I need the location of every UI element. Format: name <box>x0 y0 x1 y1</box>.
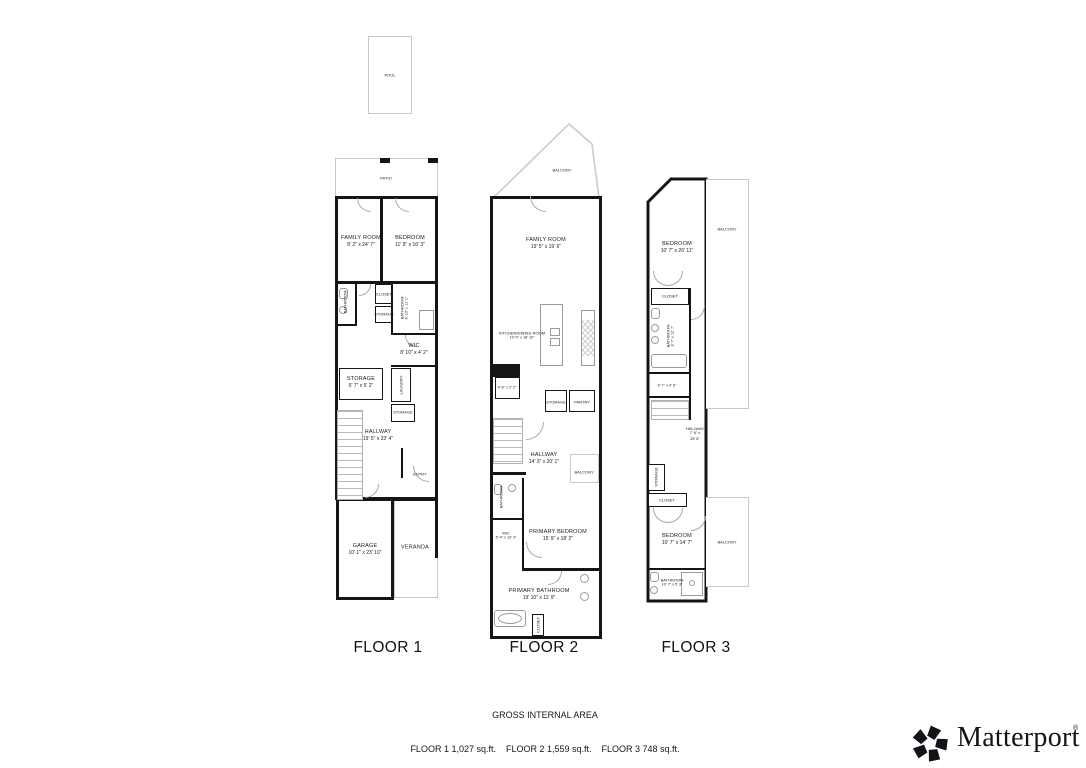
wic-label: WIC5' 4" x 13' 3" <box>496 531 517 542</box>
balcony-top-outline <box>706 179 749 409</box>
balcony-outline <box>490 122 602 200</box>
room-dims: 8' 2" x 24' 7" <box>341 242 381 249</box>
wall <box>401 448 403 478</box>
laundry-label: LAUNDRY <box>398 375 403 394</box>
patio-label-text: PATIO <box>380 175 391 180</box>
bathroom-bottom-label: BATHROOM10' 7" x 5' 3" <box>661 578 684 589</box>
matterport-logo: Matterport ® <box>910 719 1086 767</box>
nook-label: 6' 7" x 4' 6" <box>658 383 677 388</box>
stove-fixture <box>550 338 560 346</box>
balcony-label: BALCONY <box>552 167 571 172</box>
wall <box>648 396 690 398</box>
room-name: WIC <box>400 343 427 350</box>
wall <box>648 372 690 374</box>
hallway-label: HALLWAY7' 8" x28' 6" <box>686 426 704 442</box>
room-name: CLOSET <box>659 497 675 502</box>
floor2-plan: BALCONY FAMILY ROOM19' 5" x 19' 6" KITCH… <box>490 122 602 640</box>
shower-drain <box>689 580 695 586</box>
storage-small-label: STORAGE <box>393 409 413 414</box>
wall <box>391 281 393 335</box>
stairs <box>493 418 523 464</box>
room-name: GARAGE <box>349 543 382 550</box>
room-name: FAMILY ROOM <box>526 237 566 244</box>
room-name: BEDROOM <box>395 235 425 242</box>
balcony-top-label: BALCONY <box>717 226 736 231</box>
hallway-label: HALLWAY19' 5" x 33' 4" <box>363 429 393 443</box>
closet-bottom-label: CLOSET <box>659 497 675 502</box>
room-name: STORAGE <box>374 311 394 316</box>
wall <box>490 472 526 475</box>
wall <box>493 364 520 377</box>
primary-bathroom-label: PRIMARY BATHROOM19' 10" x 11' 9" <box>509 588 570 602</box>
room-dims: 19' 10" x 11' 9" <box>509 595 570 602</box>
room-dims: 8' 10" x 4' 2" <box>400 350 427 357</box>
registered-mark: ® <box>1073 725 1078 732</box>
toilet-fixture <box>651 308 660 319</box>
room-name: BALCONY <box>552 167 571 172</box>
room-dims: 14' 3" x 20' 1" <box>529 459 559 466</box>
wic-label: WIC8' 10" x 4' 2" <box>400 343 427 357</box>
floor1-caption: FLOOR 1 <box>353 639 422 657</box>
bathroom-label: BATHROOM8' 10" x 11' 1" <box>400 297 411 320</box>
room-dims: 15' 9" x 18' 2" <box>529 536 587 543</box>
wall <box>394 498 438 501</box>
primary-bedroom-label: PRIMARY BEDROOM15' 9" x 18' 2" <box>529 529 587 543</box>
room-name: BEDROOM <box>662 533 692 540</box>
room-name: BATHROOM <box>342 291 347 314</box>
wall <box>490 518 524 520</box>
toilet-fixture <box>650 572 659 582</box>
pool-label: POOL <box>384 72 395 77</box>
room-name: HALLWAY <box>363 429 393 436</box>
room-dims: 28' 6" <box>686 437 704 442</box>
room-dims: 10' 1" x 23' 10" <box>349 550 382 557</box>
wall <box>355 281 357 326</box>
floorplan-page: POOL PATIO FAMILY ROOM8' 2" x <box>0 0 1086 768</box>
hallway-label: HALLWAY14' 3" x 20' 1" <box>529 452 559 466</box>
stove-fixture <box>550 328 560 336</box>
floor3-caption: FLOOR 3 <box>661 639 730 657</box>
room-name: CLOSET <box>535 617 540 633</box>
bathtub-fixture <box>651 354 687 368</box>
wall <box>428 158 438 163</box>
storage-tiny-label: STORAGE <box>374 311 394 316</box>
room-name: LAUNDRY <box>398 375 403 394</box>
pantry-label: PANTRY <box>574 399 590 404</box>
wall <box>335 281 438 284</box>
storage-label: STORAGE <box>653 467 658 487</box>
bedroom-bottom-label: BEDROOM10' 7" x 14' 7" <box>662 533 692 547</box>
room-name: PANTRY <box>574 399 590 404</box>
bathroom-label: BATHROOM <box>498 486 503 509</box>
wall <box>648 568 706 570</box>
wall <box>380 158 390 163</box>
sink-fixture <box>651 324 659 332</box>
room-name: BATHROOM <box>498 486 503 509</box>
closet-label: CLOSET <box>535 617 540 633</box>
room-dims: 6' 7" x 4' 6" <box>658 383 677 388</box>
entry-label: ENTRY <box>413 471 426 476</box>
family-room-label: FAMILY ROOM19' 5" x 19' 6" <box>526 237 566 251</box>
closet-top-label: CLOSET <box>662 293 678 298</box>
room-name: CLOSET <box>662 293 678 298</box>
wall <box>522 478 524 570</box>
pool-label-text: POOL <box>384 72 395 77</box>
floor1-plan: PATIO FAMILY ROOM8' 2" x 24' 7" BEDROOM1… <box>335 158 438 622</box>
matterport-pinwheel-icon <box>910 724 950 764</box>
balcony-bottom-label: BALCONY <box>717 539 736 544</box>
sink-fixture <box>651 336 659 344</box>
room-dims: 5' 4" x 13' 3" <box>496 536 517 541</box>
room-name: ENTRY <box>413 471 426 476</box>
room-name: FAMILY ROOM <box>341 235 381 242</box>
closet-label: CLOSET <box>376 291 392 296</box>
room-dims: 11' 9" x 16' 3" <box>395 242 425 249</box>
floor2-caption: FLOOR 2 <box>509 639 578 657</box>
family-room-label: FAMILY ROOM8' 2" x 24' 7" <box>341 235 381 249</box>
sink-fixture <box>508 484 516 492</box>
room-name: BALCONY <box>717 539 736 544</box>
balcony-mid-label: BALCONY <box>574 469 593 474</box>
wall <box>391 365 438 367</box>
bathtub-basin <box>498 613 522 624</box>
bedroom-top-label: BEDROOM10' 7" x 26' 11" <box>661 241 694 255</box>
room-name: BALCONY <box>717 226 736 231</box>
sink-fixture <box>580 574 589 583</box>
room-name: CLOSET <box>376 291 392 296</box>
kitchen-label: KITCHEN/DINING ROOM19' 5" x 18' 10" <box>499 331 545 342</box>
room-dims: 19' 5" x 19' 6" <box>526 244 566 251</box>
nook-label: 4' 8" x 2' 2" <box>498 385 517 390</box>
shower-fixture <box>419 310 434 330</box>
room-name: BALCONY <box>574 469 593 474</box>
wall <box>335 324 357 326</box>
matterport-wordmark: Matterport <box>957 722 1080 754</box>
stairs <box>651 400 689 420</box>
garage-label: GARAGE10' 1" x 23' 10" <box>349 543 382 557</box>
room-name: VERANDA <box>401 544 429 551</box>
storage-label: STORAGE6' 7" x 5' 2" <box>347 376 375 390</box>
room-dims: 10' 7" x 14' 7" <box>662 540 692 547</box>
room-name: STORAGE <box>393 409 413 414</box>
area-summary: GROSS INTERNAL AREA FLOOR 1 1,027 sq.ft.… <box>326 687 764 768</box>
bedroom-label: BEDROOM11' 9" x 16' 3" <box>395 235 425 249</box>
room-name: STORAGE <box>653 467 658 487</box>
room-name: STORAGE <box>546 399 566 404</box>
room-dims: 10' 7" x 5' 3" <box>661 583 684 588</box>
bathroom-top-label: BATHROOM8' 7" x 12' 7" <box>666 325 677 348</box>
room-name: HALLWAY <box>529 452 559 459</box>
patio-label: PATIO <box>380 175 391 180</box>
bathroom-small-label: BATHROOM <box>342 291 347 314</box>
room-dims: 4' 8" x 2' 2" <box>498 385 517 390</box>
counter-hatch <box>582 320 594 356</box>
floor3-plan: BALCONY BEDROOM10' 7" x 26' 11" CLOSET B… <box>645 176 757 604</box>
room-dims: 19' 5" x 18' 10" <box>499 336 545 341</box>
sink-fixture <box>650 586 658 594</box>
wall <box>522 568 602 571</box>
room-dims: 8' 7" x 12' 7" <box>671 325 676 348</box>
storage-label: STORAGE <box>546 399 566 404</box>
room-name: PRIMARY BATHROOM <box>509 588 570 595</box>
sink-fixture <box>580 592 589 601</box>
stairs <box>337 410 363 500</box>
summary-title: GROSS INTERNAL AREA <box>326 710 764 721</box>
room-dims: 19' 5" x 33' 4" <box>363 436 393 443</box>
wall <box>435 498 438 558</box>
room-name: PRIMARY BEDROOM <box>529 529 587 536</box>
room-dims: 6' 7" x 5' 2" <box>347 383 375 390</box>
veranda-label: VERANDA <box>401 544 429 551</box>
summary-floors-line: FLOOR 1 1,027 sq.ft. FLOOR 2 1,559 sq.ft… <box>326 744 764 755</box>
room-name: BEDROOM <box>661 241 694 248</box>
room-name: STORAGE <box>347 376 375 383</box>
room-dims: 10' 7" x 26' 11" <box>661 248 694 255</box>
room-dims: 8' 10" x 11' 1" <box>405 297 410 320</box>
